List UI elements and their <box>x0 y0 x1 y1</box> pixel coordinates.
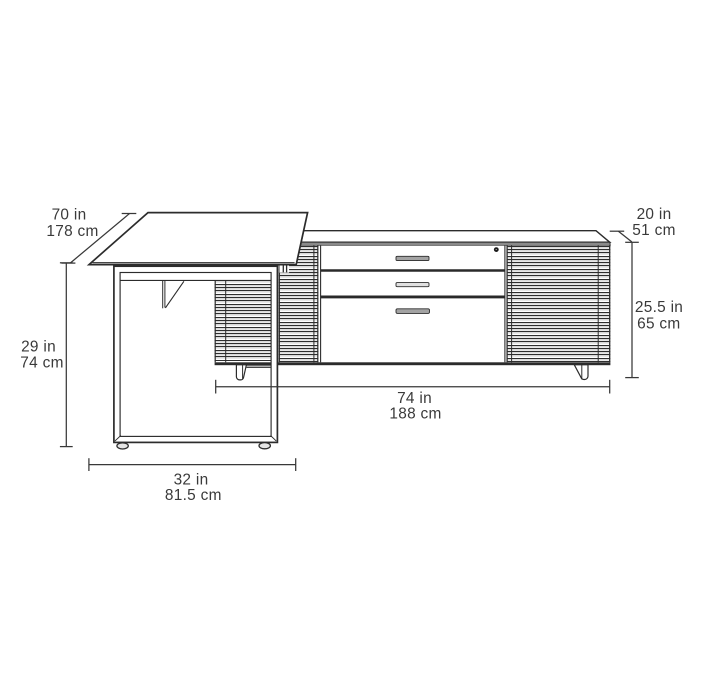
svg-text:74 cm: 74 cm <box>20 355 63 372</box>
svg-text:20 in: 20 in <box>637 206 672 223</box>
svg-text:51 cm: 51 cm <box>632 222 675 239</box>
svg-text:65 cm: 65 cm <box>637 315 680 332</box>
svg-text:29 in: 29 in <box>21 339 56 356</box>
svg-text:188 cm: 188 cm <box>389 406 441 423</box>
svg-text:25.5 in: 25.5 in <box>635 299 683 316</box>
svg-text:81.5 cm: 81.5 cm <box>165 487 222 504</box>
svg-text:74 in: 74 in <box>397 390 432 407</box>
svg-text:32 in: 32 in <box>174 472 209 489</box>
svg-text:70 in: 70 in <box>52 207 87 224</box>
svg-text:178 cm: 178 cm <box>46 223 98 240</box>
